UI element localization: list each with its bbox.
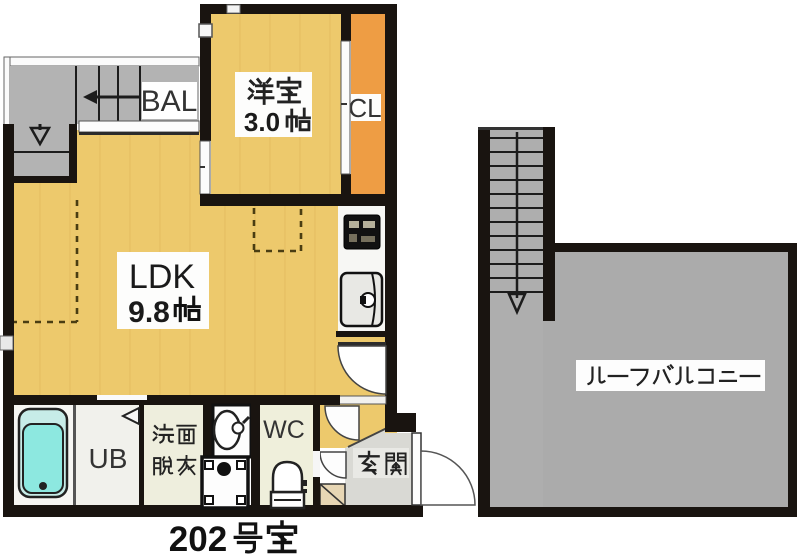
svg-text:202: 202 bbox=[169, 520, 227, 555]
svg-text:WC: WC bbox=[263, 416, 305, 444]
svg-text:3.0: 3.0 bbox=[244, 107, 280, 137]
svg-text:CL: CL bbox=[348, 93, 381, 123]
svg-text:LDK: LDK bbox=[129, 258, 195, 296]
svg-text:BAL: BAL bbox=[141, 85, 198, 118]
svg-text:9.8: 9.8 bbox=[128, 296, 170, 329]
svg-text:UB: UB bbox=[89, 443, 128, 474]
